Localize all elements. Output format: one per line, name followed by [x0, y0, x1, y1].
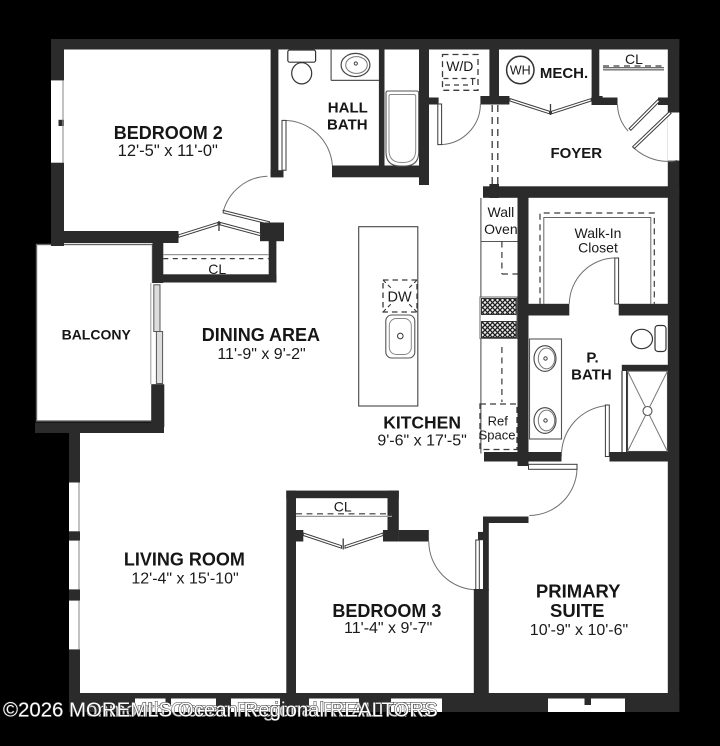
svg-text:Oven: Oven	[484, 221, 517, 237]
svg-text:WH: WH	[510, 64, 531, 78]
svg-text:Space: Space	[479, 428, 516, 443]
svg-text:DW: DW	[388, 289, 412, 305]
svg-text:SUITE: SUITE	[550, 600, 604, 621]
svg-text:FOYER: FOYER	[550, 145, 602, 162]
svg-text:12'-4" x 15'-10": 12'-4" x 15'-10"	[131, 570, 238, 587]
svg-text:12'-5" x 11'-0": 12'-5" x 11'-0"	[118, 142, 218, 160]
svg-text:Ref: Ref	[488, 414, 509, 429]
svg-text:BALCONY: BALCONY	[62, 327, 132, 343]
svg-text:MECH.: MECH.	[540, 65, 588, 82]
svg-text:Closet: Closet	[578, 239, 618, 255]
svg-text:CL: CL	[334, 498, 352, 514]
svg-text:KITCHEN: KITCHEN	[383, 412, 461, 432]
svg-text:W/D: W/D	[446, 58, 473, 74]
svg-text:PRIMARY: PRIMARY	[536, 581, 621, 602]
svg-text:HALL: HALL	[328, 100, 368, 117]
svg-text:11'-9" x 9'-2": 11'-9" x 9'-2"	[217, 346, 305, 363]
svg-text:BEDROOM 2: BEDROOM 2	[114, 123, 223, 143]
svg-text:BATH: BATH	[327, 117, 368, 134]
svg-text:BEDROOM 3: BEDROOM 3	[332, 601, 441, 621]
svg-text:10'-9" x 10'-6": 10'-9" x 10'-6"	[530, 622, 628, 639]
svg-text:©2026 MOREMLS Ocean Regional R: ©2026 MOREMLS Ocean Regional REALTORS	[3, 700, 438, 722]
svg-text:P.: P.	[586, 350, 598, 367]
svg-text:Wall: Wall	[488, 204, 515, 220]
svg-text:LIVING ROOM: LIVING ROOM	[124, 550, 245, 570]
svg-text:9'-6" x 17'-5": 9'-6" x 17'-5"	[377, 432, 467, 449]
svg-text:CL: CL	[625, 51, 643, 67]
svg-text:BATH: BATH	[571, 367, 612, 384]
svg-text:11'-4" x 9'-7": 11'-4" x 9'-7"	[344, 620, 432, 637]
svg-text:DINING AREA: DINING AREA	[202, 325, 320, 345]
